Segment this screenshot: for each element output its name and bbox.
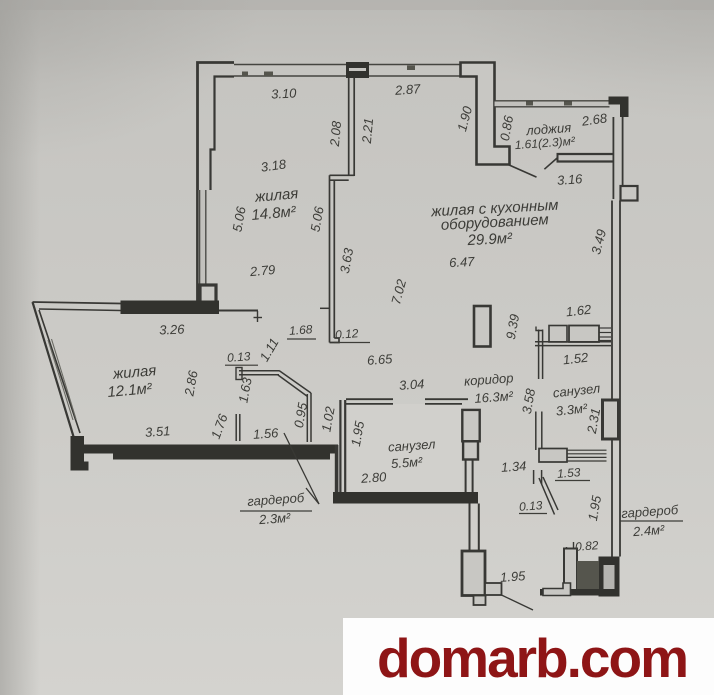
svg-text:6.65: 6.65	[367, 351, 394, 368]
svg-text:2.79: 2.79	[248, 262, 276, 279]
svg-text:2.08: 2.08	[327, 120, 344, 148]
svg-text:5.5м²: 5.5м²	[391, 454, 424, 471]
svg-text:1.56: 1.56	[253, 425, 280, 442]
svg-text:3.10: 3.10	[271, 85, 298, 101]
svg-text:1.34: 1.34	[501, 458, 527, 475]
svg-text:1.52: 1.52	[562, 350, 589, 368]
svg-text:0.13: 0.13	[227, 349, 252, 365]
svg-text:1.53: 1.53	[557, 465, 582, 481]
svg-text:3.51: 3.51	[145, 423, 171, 440]
svg-text:2.3м²: 2.3м²	[258, 510, 292, 527]
svg-text:2.21: 2.21	[359, 117, 376, 145]
svg-text:2.87: 2.87	[394, 81, 422, 98]
svg-text:domarb.com: domarb.com	[377, 627, 687, 689]
svg-text:2.80: 2.80	[360, 469, 388, 486]
svg-text:1.68: 1.68	[289, 322, 314, 338]
svg-text:3.26: 3.26	[159, 322, 186, 338]
svg-text:2.4м²: 2.4м²	[632, 522, 666, 539]
svg-text:6.47: 6.47	[449, 254, 476, 270]
svg-text:29.9м²: 29.9м²	[466, 230, 513, 249]
svg-text:1.62: 1.62	[565, 302, 592, 320]
svg-text:0.12: 0.12	[335, 326, 360, 342]
svg-text:0.13: 0.13	[519, 498, 544, 514]
svg-text:0.82: 0.82	[575, 538, 600, 554]
svg-text:1.95: 1.95	[500, 568, 527, 585]
svg-text:16.3м²: 16.3м²	[474, 388, 514, 406]
svg-text:3.16: 3.16	[557, 171, 584, 188]
svg-text:3.04: 3.04	[399, 376, 425, 393]
